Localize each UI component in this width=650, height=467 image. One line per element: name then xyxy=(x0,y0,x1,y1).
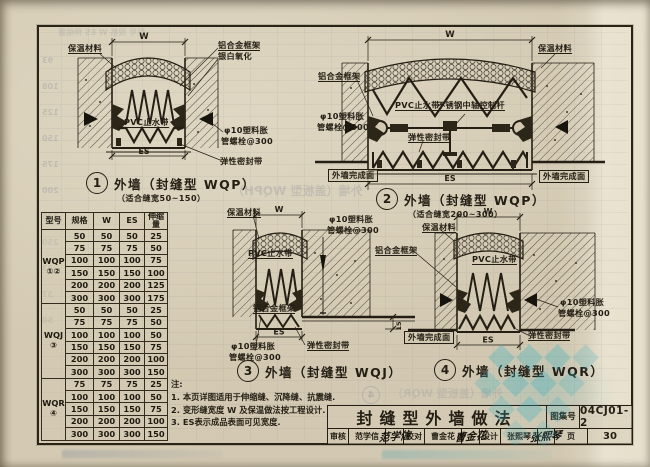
table-cell: 50 xyxy=(145,242,168,254)
table-cell: 75 xyxy=(120,316,145,328)
table-cell: 150 xyxy=(94,267,120,279)
bolt-label: 管螺栓@300 xyxy=(317,123,369,132)
table-cell: 150 xyxy=(120,403,145,415)
table-cell: 50 xyxy=(145,329,168,341)
notes-block: 注: 1. 本页详图适用于伸缩缝、沉降缝、抗震缝. 2. 变形缝宽度 W 及保温… xyxy=(171,378,335,429)
detail-1-number-badge: 1 xyxy=(86,172,108,194)
bolt-label: 管螺栓@300 xyxy=(327,226,379,235)
table-cell: 300 xyxy=(120,291,145,303)
handwritten-signature: 范学信 xyxy=(378,428,411,446)
wall-finish-label: 外墙完成面 xyxy=(404,331,454,344)
table-cell: 100 xyxy=(120,254,145,266)
table-cell: 50 xyxy=(120,304,145,316)
control-rod-label: 不锈钢中轴控制杆 xyxy=(437,101,505,111)
table-column-header: ES xyxy=(120,213,145,230)
table-cell: 100 xyxy=(120,329,145,341)
bolt-label: φ10塑料胀 xyxy=(224,126,268,135)
note-line: 2. 变形缝宽度 W 及保温做法按工程设计. xyxy=(171,404,335,417)
pvc-waterstop-label: PVC止水带 xyxy=(124,118,169,128)
table-cell: 100 xyxy=(66,254,94,266)
svg-text:W: W xyxy=(275,205,284,214)
table-cell: 100 xyxy=(145,267,168,279)
table-cell: 75 xyxy=(120,242,145,254)
table-cell: 75 xyxy=(145,254,168,266)
table-cell: 300 xyxy=(94,366,120,378)
alu-frame-label: 铝合金框架 xyxy=(253,304,295,314)
detail-2-caption: 2 外墙（封缝型 WQP） xyxy=(376,188,546,210)
table-cell: 300 xyxy=(94,291,120,303)
table-cell: 75 xyxy=(66,378,94,390)
table-cell: 150 xyxy=(120,341,145,353)
table-header-row: 型号规格WES伸缩量 xyxy=(42,213,168,230)
detail-2-number-badge: 2 xyxy=(376,188,398,210)
svg-text:ES: ES xyxy=(138,147,149,156)
svg-text:ES: ES xyxy=(273,328,284,337)
table-cell: 25 xyxy=(145,304,168,316)
table-cell: 300 xyxy=(94,428,120,440)
table-cell: 150 xyxy=(66,267,94,279)
svg-text:W: W xyxy=(139,32,149,42)
table-cell: 200 xyxy=(94,279,120,291)
table-column-header: 伸缩量 xyxy=(145,213,168,230)
table-cell: 100 xyxy=(145,353,168,365)
detail-3-title: 外墙（封缝型 WQJ） xyxy=(265,362,402,381)
note-line: 3. ES表示成品表面可见宽度. xyxy=(171,416,335,429)
insulation-label: 保温材料 xyxy=(422,223,456,233)
table-cell: 100 xyxy=(66,391,94,403)
signature-cell: 曹金花 xyxy=(462,429,480,444)
table-cell: 175 xyxy=(145,291,168,303)
table-cell: 300 xyxy=(66,428,94,440)
table-cell: 75 xyxy=(66,316,94,328)
detail-2-title: 外墙（封缝型 WQP） xyxy=(404,190,546,209)
title-block: 封缝型外墙做法 图集号 04CJ01-2 审核范学信范学信校对曹金花曹金花设计张… xyxy=(327,405,633,445)
table-cell: 300 xyxy=(66,366,94,378)
detail-3-caption: 3 外墙（封缝型 WQJ） xyxy=(237,360,402,382)
table-column-header: 规格 xyxy=(66,213,94,230)
table-column-header: 型号 xyxy=(42,213,66,230)
table-cell: 300 xyxy=(120,428,145,440)
table-cell: 150 xyxy=(145,428,168,440)
detail-4-title: 外墙（封缝型 WQR） xyxy=(462,361,604,380)
elastic-seal-label: 弹性密封带 xyxy=(408,133,450,143)
table-cell: 200 xyxy=(66,353,94,365)
wall-finish-label: 外墙完成面 xyxy=(328,169,378,182)
svg-text:ES: ES xyxy=(444,174,455,183)
sheet-title: 封缝型外墙做法 xyxy=(328,406,547,428)
table-cell: 150 xyxy=(66,341,94,353)
table-cell: 75 xyxy=(94,378,120,390)
table-cell: 100 xyxy=(120,391,145,403)
svg-text:ES: ES xyxy=(482,336,493,345)
detail-1-subtitle: （适合缝宽50~150） xyxy=(117,193,206,204)
table-cell: 150 xyxy=(66,403,94,415)
table-cell: 200 xyxy=(120,279,145,291)
table-cell: 75 xyxy=(145,341,168,353)
table-row: WQR④75757525 xyxy=(42,378,168,390)
table-cell: 300 xyxy=(120,366,145,378)
spec-table: 型号规格WES伸缩量 WQP①②505050257575755010010010… xyxy=(41,212,168,441)
svg-text:W: W xyxy=(445,30,455,40)
table-cell: 100 xyxy=(94,254,120,266)
table-cell: 200 xyxy=(66,279,94,291)
pvc-waterstop-label: PVC止水带 xyxy=(395,101,440,111)
elastic-seal-label: 弹性密封带 xyxy=(220,157,262,166)
margin-smudge xyxy=(382,450,552,459)
table-cell: 125 xyxy=(145,279,168,291)
detail-1-caption: 1 外墙（封缝型 WQP） xyxy=(86,172,256,194)
signature-cell: 张熙琴 xyxy=(538,429,555,444)
table-cell: 100 xyxy=(94,391,120,403)
table-cell: 200 xyxy=(66,415,94,427)
page-number: 30 xyxy=(588,429,632,444)
insulation-label: 保温材料 xyxy=(68,44,102,54)
table-cell: 150 xyxy=(94,341,120,353)
pvc-waterstop-label: PVC止水带 xyxy=(472,255,517,265)
margin-smudge xyxy=(62,450,222,458)
table-cell: 50 xyxy=(66,230,94,242)
role-label: 审核 xyxy=(328,429,349,444)
table-cell: 75 xyxy=(94,316,120,328)
signature-cell: 范学信 xyxy=(386,429,404,444)
table-cell: 75 xyxy=(94,242,120,254)
table-cell: 300 xyxy=(66,291,94,303)
insulation-label: 保温材料 xyxy=(538,44,572,54)
table-cell: 200 xyxy=(94,353,120,365)
title-block-bottom-row: 审核范学信范学信校对曹金花曹金花设计张熙琴张熙琴页 30 xyxy=(328,429,632,444)
table-cell: 200 xyxy=(94,415,120,427)
wall-finish-label: 外墙完成面 xyxy=(539,170,589,183)
bolt-label: φ10塑料胀 xyxy=(231,342,275,351)
table-cell: 200 xyxy=(120,415,145,427)
scanned-atlas-page: 型号 规格 W ES 伸缩量 9310812515017520022525023… xyxy=(0,0,650,467)
elastic-seal-label: 弹性密封带 xyxy=(528,331,570,341)
detail-2-subtitle: （适合缝宽200~300） xyxy=(408,209,503,220)
detail-4-number-badge: 4 xyxy=(434,359,456,381)
detail-1-title: 外墙（封缝型 WQP） xyxy=(114,174,256,193)
bolt-label: φ10塑料胀 xyxy=(320,112,364,121)
title-block-top-row: 封缝型外墙做法 图集号 04CJ01-2 xyxy=(328,406,632,429)
table-cell: 150 xyxy=(145,366,168,378)
handwritten-signature: 张熙琴 xyxy=(530,428,563,446)
detail-3-number-badge: 3 xyxy=(237,360,259,382)
table-cell: 75 xyxy=(145,403,168,415)
table-cell: 75 xyxy=(120,378,145,390)
table-cell: 200 xyxy=(120,353,145,365)
table-cell: 50 xyxy=(145,316,168,328)
table-cell: 100 xyxy=(145,415,168,427)
table-cell: 150 xyxy=(94,403,120,415)
table-cell: 100 xyxy=(94,329,120,341)
alu-frame-label: 铝合金框架 xyxy=(375,246,417,256)
table-cell: 150 xyxy=(120,267,145,279)
table-cell: 75 xyxy=(66,242,94,254)
alu-frame-label: 铝合金框架 xyxy=(318,72,360,82)
note-line: 1. 本页详图适用于伸缩缝、沉降缝、抗震缝. xyxy=(171,391,335,404)
model-cell: WQR④ xyxy=(42,378,66,440)
table-row: WQP①②50505025 xyxy=(42,230,168,242)
table-cell: 100 xyxy=(66,329,94,341)
atlas-number: 04CJ01-2 xyxy=(580,406,632,428)
anodized-label: 银白氧化 xyxy=(218,52,252,61)
bolt-label: 管螺栓@300 xyxy=(558,309,610,318)
atlas-number-label: 图集号 xyxy=(547,406,580,428)
table-cell: 50 xyxy=(66,304,94,316)
handwritten-signature: 曹金花 xyxy=(454,428,487,446)
table-cell: 50 xyxy=(120,230,145,242)
table-cell: 50 xyxy=(145,391,168,403)
insulation-label: 保温材料 xyxy=(227,208,261,218)
table-cell: 50 xyxy=(94,304,120,316)
bolt-label: 管螺栓@300 xyxy=(221,137,273,146)
detail-4-caption: 4 外墙（封缝型 WQR） xyxy=(434,359,604,381)
table-cell: 25 xyxy=(145,230,168,242)
pvc-waterstop-label: PVC止水带 xyxy=(248,249,293,259)
table-column-header: W xyxy=(94,213,120,230)
table-cell: 50 xyxy=(94,230,120,242)
elastic-seal-label: 弹性密封带 xyxy=(307,341,349,351)
alu-frame-label: 铝合金框架 xyxy=(218,41,260,51)
bolt-label: φ10塑料胀 xyxy=(329,215,373,224)
model-cell: WQJ③ xyxy=(42,304,66,378)
bolt-label: φ10塑料胀 xyxy=(560,298,604,307)
model-cell: WQP①② xyxy=(42,230,66,304)
table-cell: 25 xyxy=(145,378,168,390)
table-row: WQJ③50505025 xyxy=(42,304,168,316)
